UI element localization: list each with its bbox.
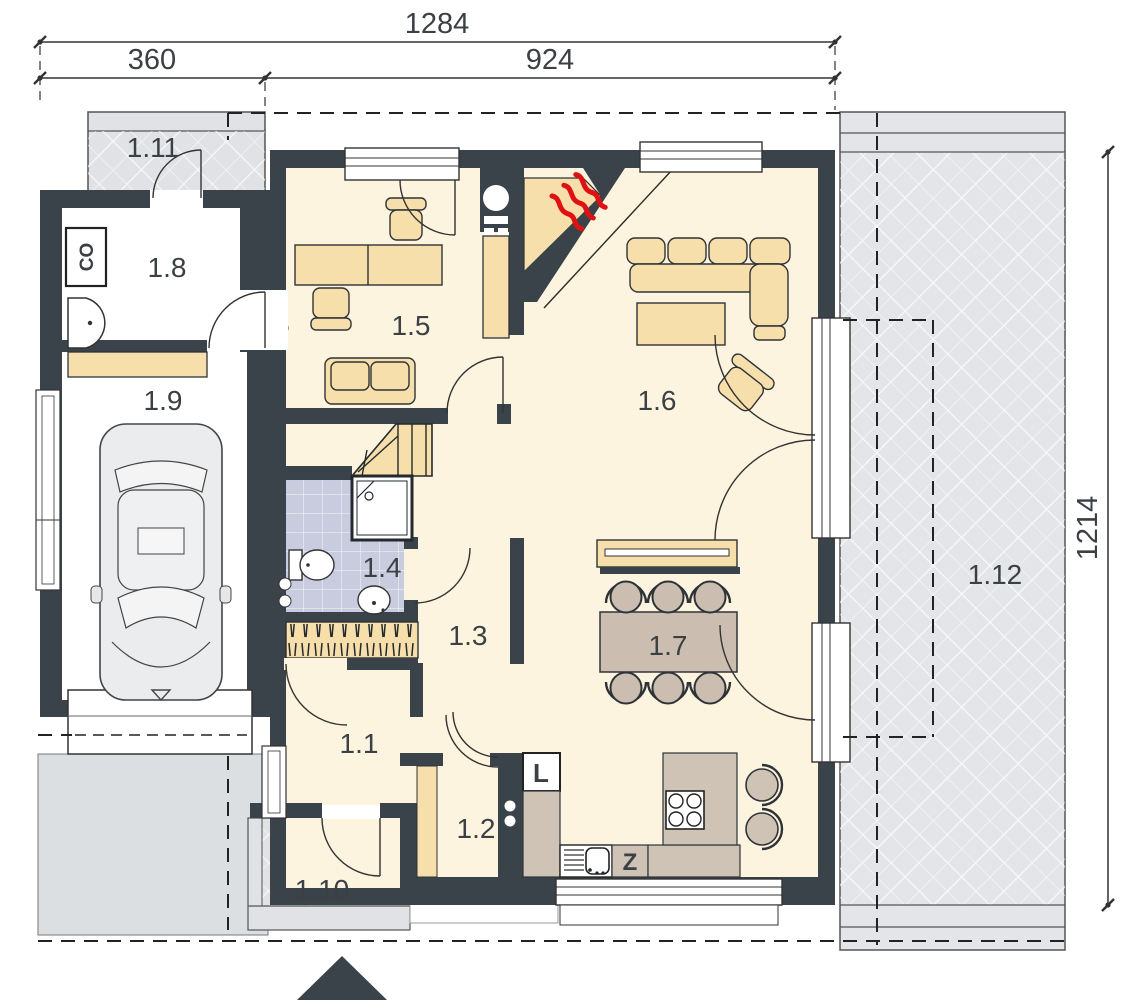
pantry-shelf	[417, 766, 437, 877]
corner-sofa	[627, 238, 665, 264]
room-label-1-6: 1.6	[638, 385, 677, 416]
main-house	[250, 150, 835, 905]
floor-plan-drawing: 1284 360 924 1214 1.11 1.8 1.9 1.5 1.6 1…	[0, 0, 1132, 1000]
hall-cabinet	[483, 236, 509, 338]
room-label-1-1: 1.1	[340, 728, 379, 759]
room-label-1-10: 1.10	[295, 874, 350, 905]
room-label-1-4: 1.4	[363, 552, 402, 583]
terrace-1-12	[840, 112, 1065, 950]
garage-shelf	[68, 352, 207, 377]
toilet-icon	[289, 550, 334, 580]
floor-plan-canvas: 1284 360 924 1214 1.11 1.8 1.9 1.5 1.6 1…	[0, 0, 1132, 1000]
dim-left-width: 360	[128, 44, 176, 76]
dim-right-width: 924	[526, 44, 574, 76]
dishwasher-label: Z	[623, 849, 638, 876]
coffee-table	[637, 303, 725, 345]
room-label-1-3: 1.3	[449, 620, 488, 651]
shower-icon	[352, 476, 412, 540]
stove-icon	[666, 791, 704, 829]
room-label-1-8: 1.8	[148, 252, 187, 283]
bathroom	[279, 466, 418, 622]
driveway	[38, 754, 268, 935]
room-label-1-9: 1.9	[144, 385, 183, 416]
boiler-label: CO	[77, 243, 98, 272]
kitchen-counter-bottom	[648, 845, 740, 877]
sink-icon	[560, 845, 612, 877]
room-label-1-5: 1.5	[392, 310, 431, 341]
fridge-label: L	[533, 758, 549, 788]
room-label-1-7: 1.7	[649, 630, 688, 661]
car-icon	[91, 424, 231, 700]
dim-total-width: 1284	[405, 8, 470, 40]
room-label-1-2: 1.2	[457, 813, 496, 844]
entrance-arrow-icon	[297, 956, 387, 1000]
room-label-1-11: 1.11	[127, 132, 179, 163]
dim-side-depth: 1214	[1072, 496, 1104, 561]
dining-set	[597, 540, 740, 704]
basin-icon	[358, 586, 390, 614]
kitchen-counter-left	[523, 791, 560, 877]
garage-window	[36, 390, 60, 590]
side-chair	[313, 288, 349, 318]
room-label-1-12: 1.12	[968, 559, 1023, 590]
